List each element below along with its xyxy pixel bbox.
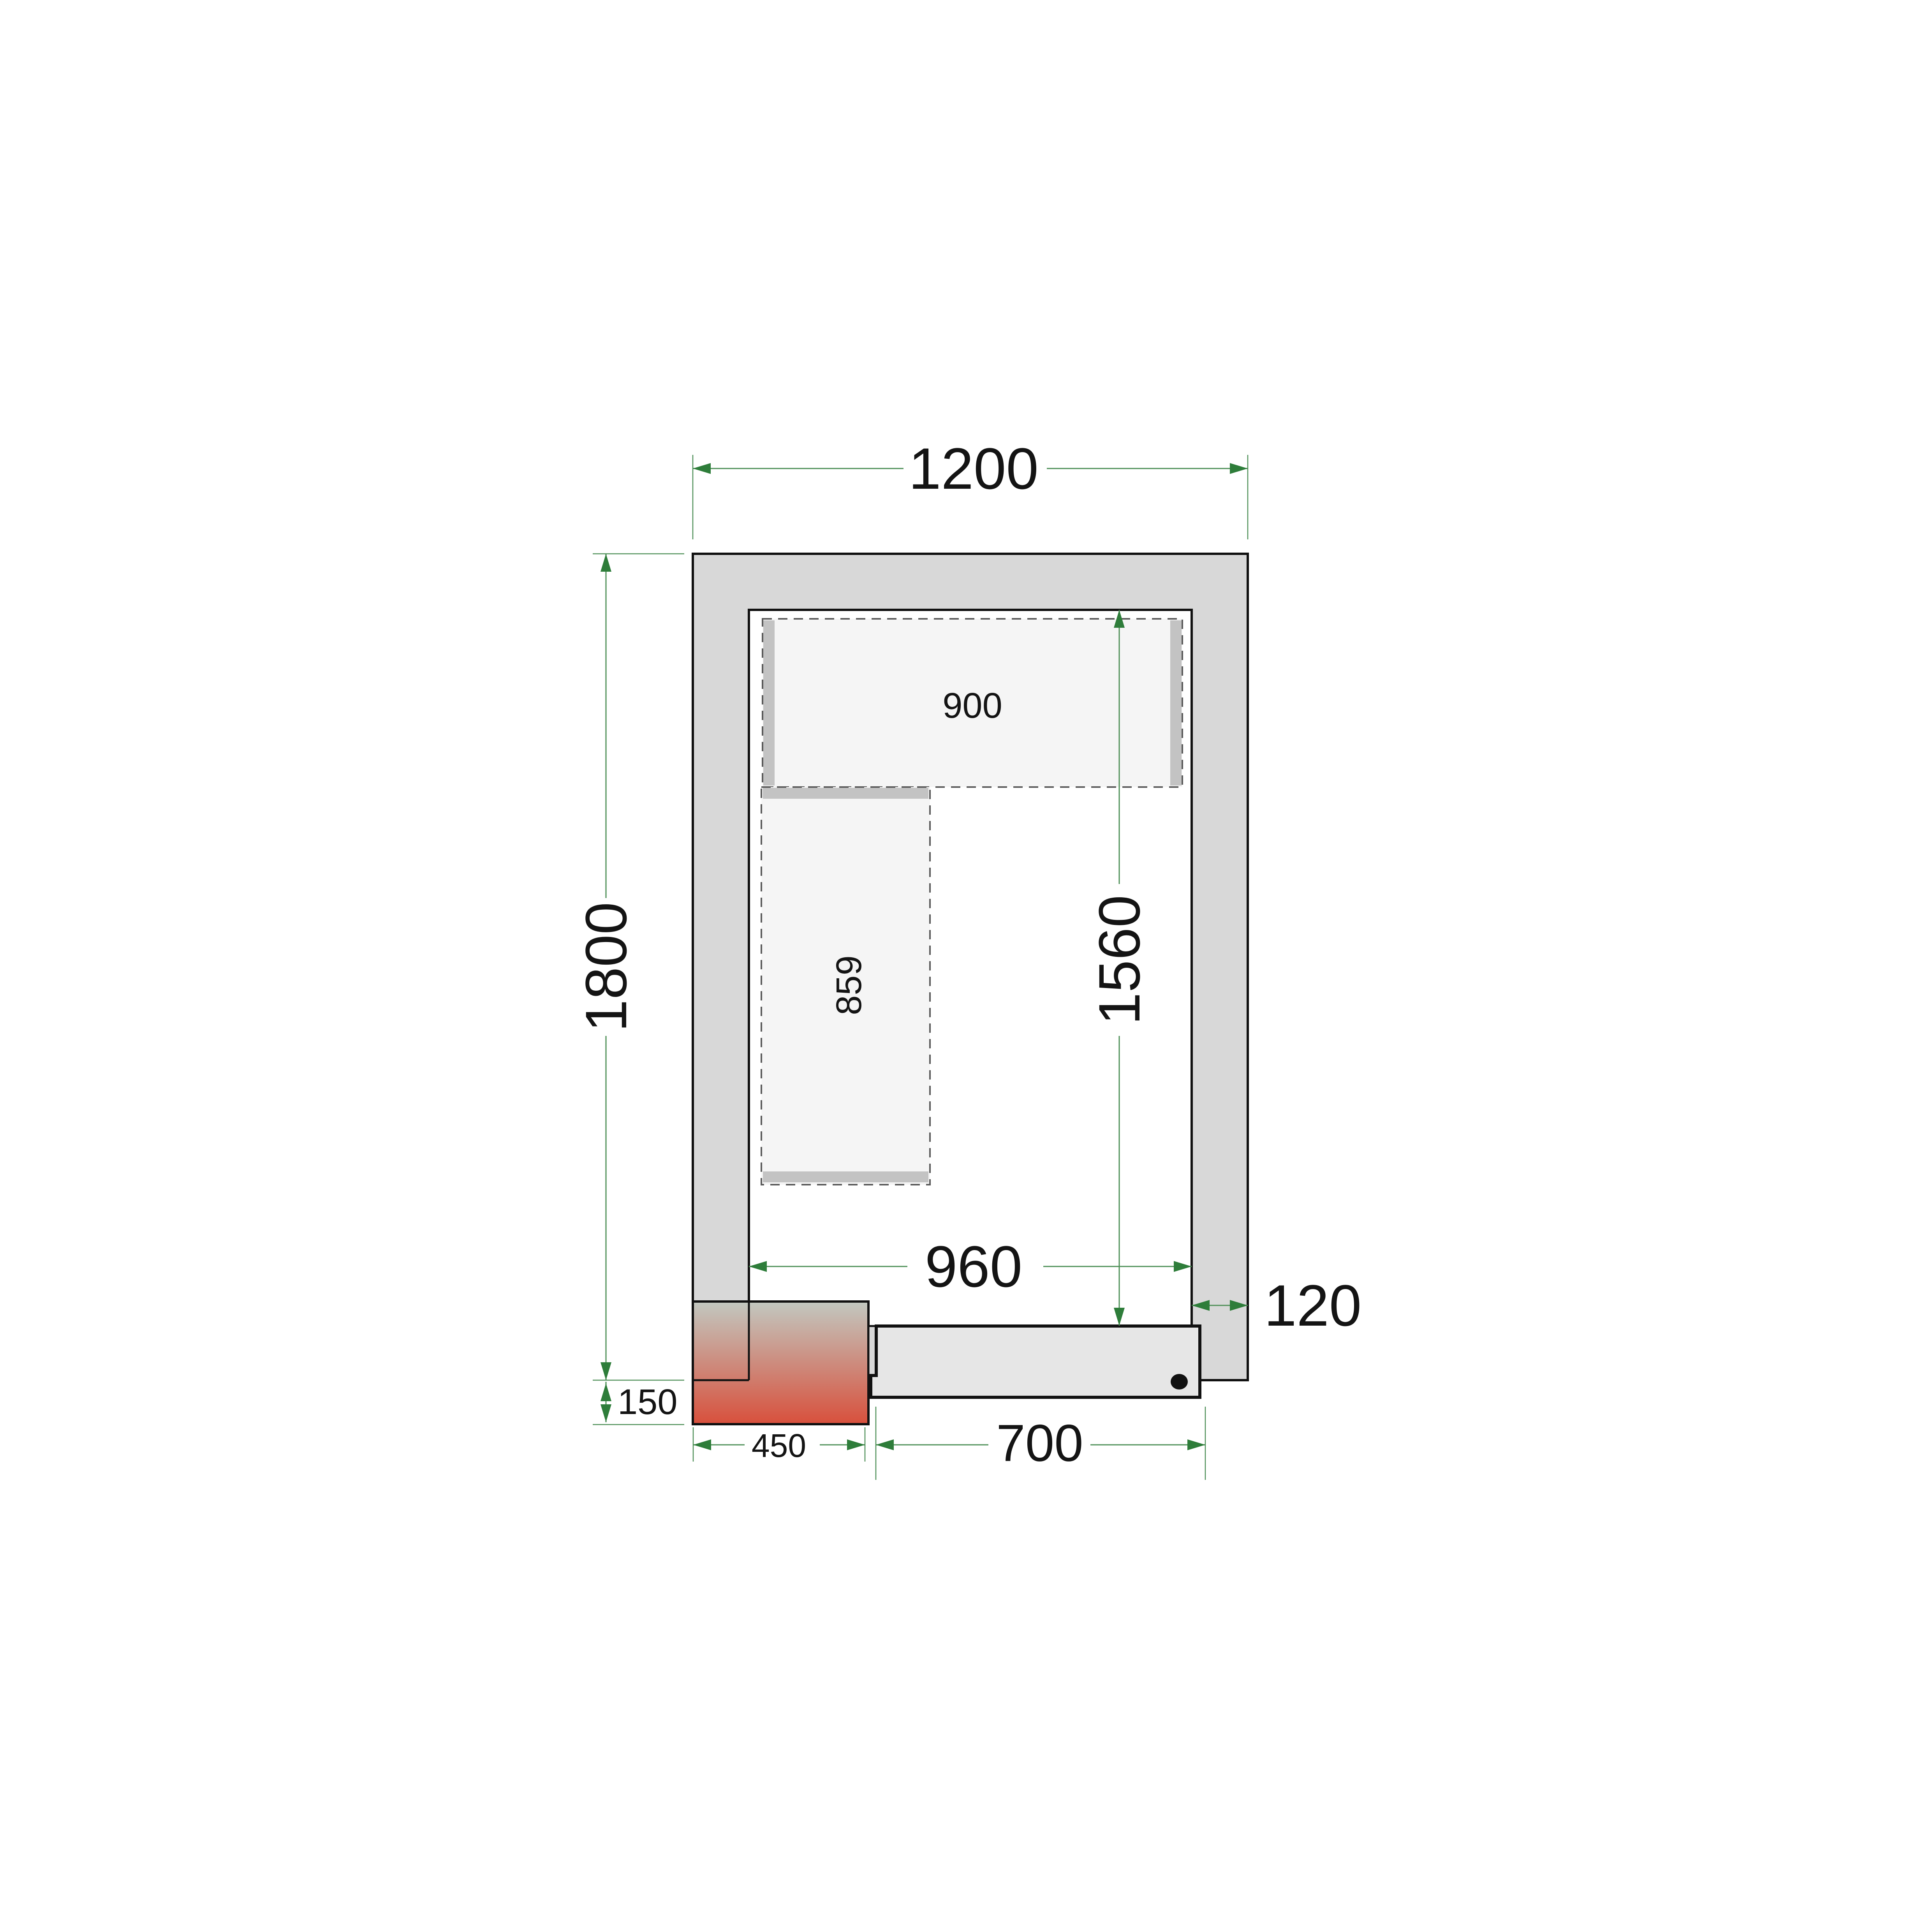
page-background: [0, 0, 1932, 1932]
floor-plan-canvas: 900 859: [0, 0, 1932, 1932]
top-shelf-right-bar: [1170, 620, 1182, 785]
side-shelf-label: 859: [829, 955, 869, 1015]
unit-offset-label: 150: [618, 1382, 678, 1422]
unit-width-label: 450: [752, 1427, 806, 1464]
door: [868, 1326, 1200, 1397]
side-shelf-top-bar: [763, 788, 928, 799]
top-shelf-left-bar: [763, 620, 775, 785]
wall-thickness-label: 120: [1264, 1273, 1361, 1338]
inner-width-label: 960: [925, 1234, 1022, 1299]
inner-depth-label: 1560: [1087, 895, 1152, 1025]
outer-depth-label: 1800: [573, 902, 639, 1032]
side-shelf-bottom-bar: [763, 1171, 928, 1182]
outer-width-label: 1200: [909, 436, 1039, 501]
cooling-unit-body: [693, 1302, 868, 1424]
top-shelf-label: 900: [942, 686, 1002, 726]
cooling-unit: [693, 1302, 868, 1424]
door-width-label: 700: [996, 1414, 1083, 1472]
door-handle-dot: [1171, 1374, 1188, 1390]
door-leaf: [871, 1326, 1200, 1397]
